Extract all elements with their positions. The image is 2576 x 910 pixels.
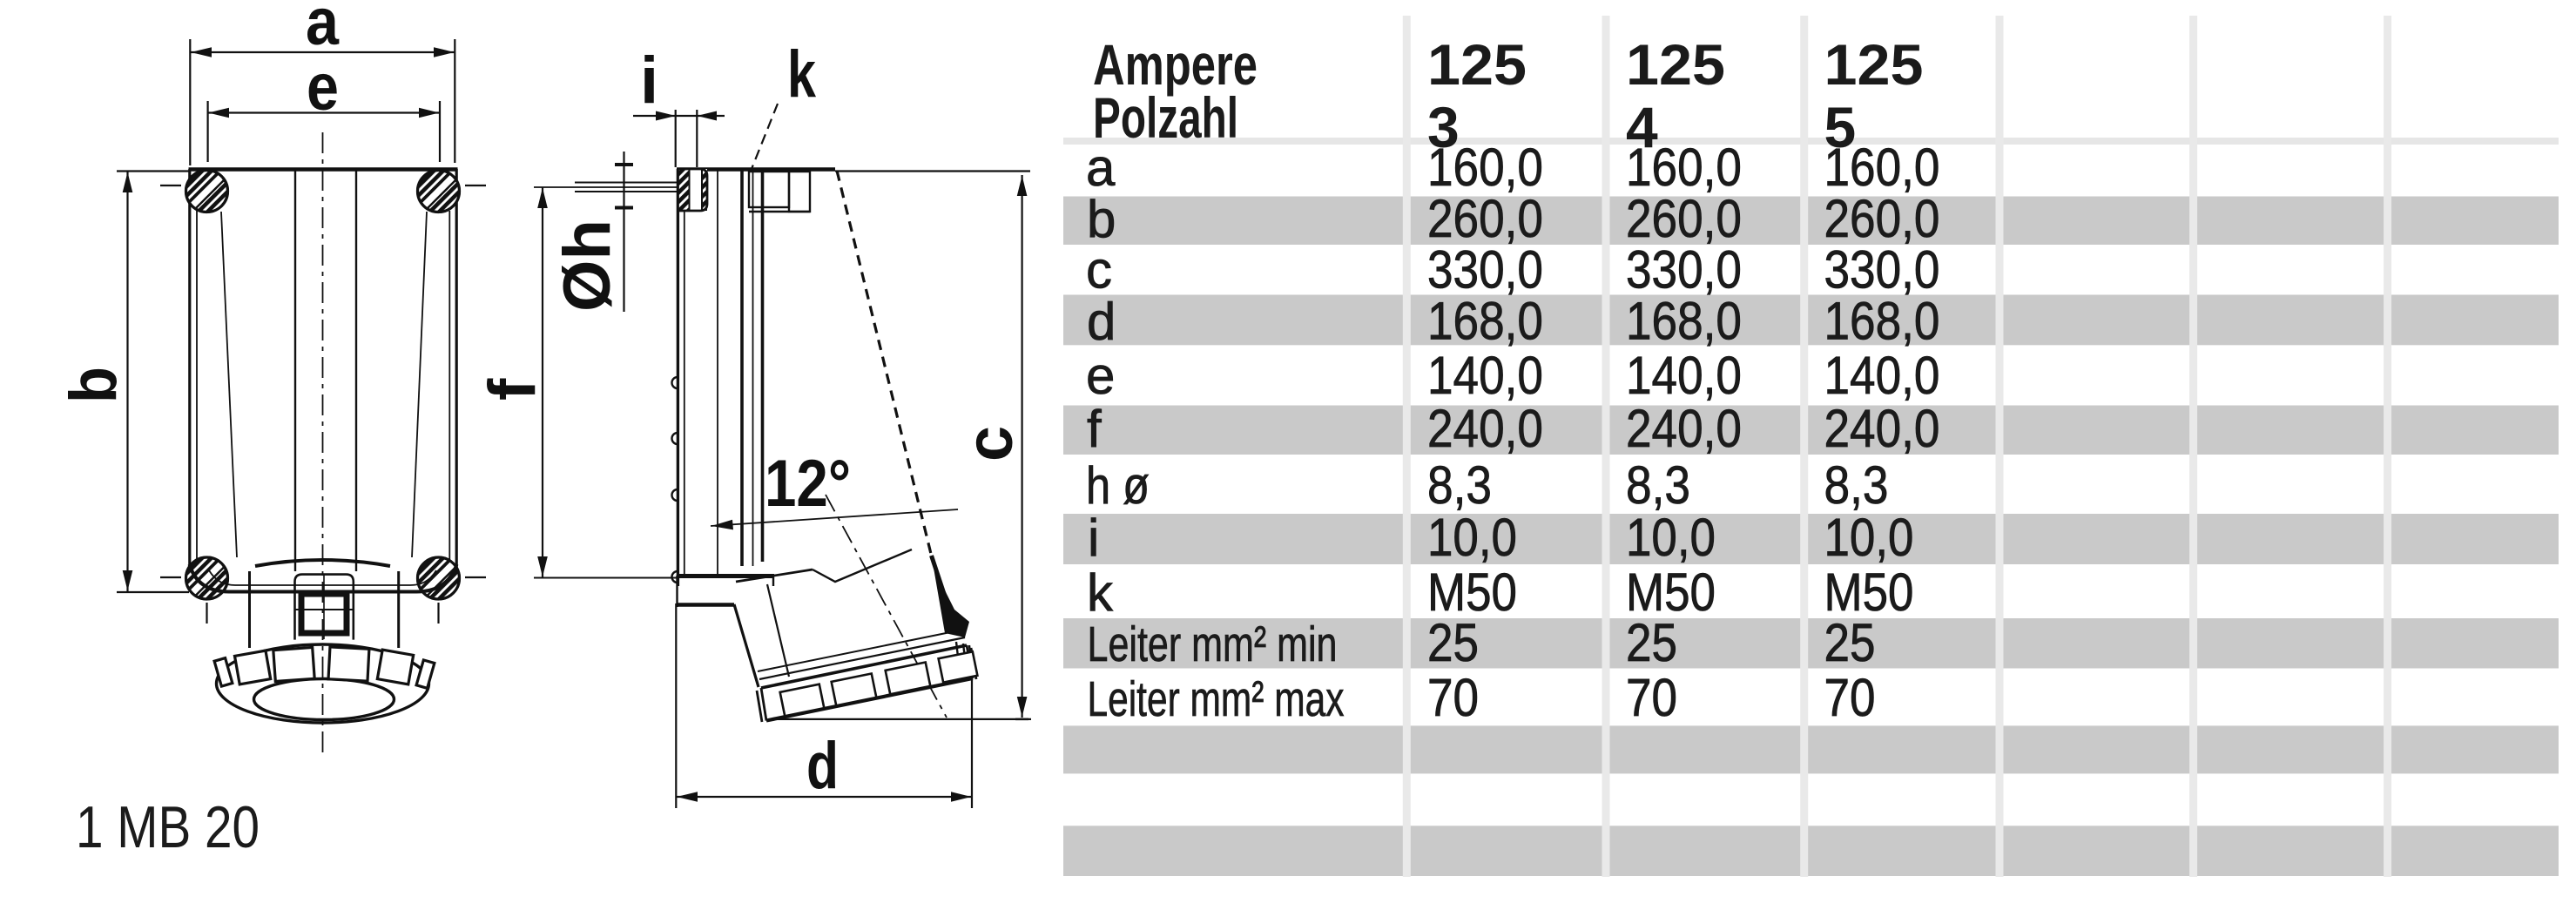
svg-text:c: c xyxy=(1086,241,1112,300)
svg-text:b: b xyxy=(1087,190,1116,248)
svg-text:240,0: 240,0 xyxy=(1824,399,1940,458)
svg-text:240,0: 240,0 xyxy=(1427,399,1543,458)
svg-text:1 MB 20: 1 MB 20 xyxy=(76,794,260,860)
svg-text:10,0: 10,0 xyxy=(1427,508,1517,567)
svg-text:k: k xyxy=(787,37,817,111)
svg-text:Øh: Øh xyxy=(550,219,624,312)
svg-text:330,0: 330,0 xyxy=(1427,240,1543,300)
svg-text:d: d xyxy=(1087,293,1116,351)
svg-text:c: c xyxy=(953,426,1027,462)
svg-text:125: 125 xyxy=(1626,32,1725,97)
svg-text:168,0: 168,0 xyxy=(1824,292,1940,351)
svg-text:d: d xyxy=(806,729,839,803)
svg-text:10,0: 10,0 xyxy=(1626,508,1716,567)
svg-text:k: k xyxy=(1087,563,1114,622)
svg-text:e: e xyxy=(307,51,339,125)
svg-text:h ø: h ø xyxy=(1086,456,1150,515)
svg-text:25: 25 xyxy=(1626,613,1677,672)
svg-text:330,0: 330,0 xyxy=(1626,240,1742,300)
svg-text:70: 70 xyxy=(1824,668,1876,727)
svg-text:8,3: 8,3 xyxy=(1626,455,1690,515)
svg-text:8,3: 8,3 xyxy=(1427,455,1492,515)
svg-text:12°: 12° xyxy=(765,447,851,521)
svg-text:f: f xyxy=(475,378,550,401)
svg-text:125: 125 xyxy=(1824,32,1924,97)
svg-text:8,3: 8,3 xyxy=(1824,455,1889,515)
svg-text:125: 125 xyxy=(1427,32,1527,97)
svg-text:140,0: 140,0 xyxy=(1824,346,1940,405)
svg-text:330,0: 330,0 xyxy=(1824,240,1940,300)
svg-text:f: f xyxy=(1087,400,1102,458)
svg-text:10,0: 10,0 xyxy=(1824,508,1914,567)
svg-text:168,0: 168,0 xyxy=(1626,292,1742,351)
svg-text:e: e xyxy=(1086,347,1115,405)
svg-text:a: a xyxy=(1086,138,1116,197)
svg-text:70: 70 xyxy=(1427,668,1479,727)
svg-text:70: 70 xyxy=(1626,668,1677,727)
svg-text:168,0: 168,0 xyxy=(1427,292,1543,351)
svg-text:160,0: 160,0 xyxy=(1824,138,1940,197)
svg-text:240,0: 240,0 xyxy=(1626,399,1742,458)
svg-text:160,0: 160,0 xyxy=(1626,138,1742,197)
svg-text:160,0: 160,0 xyxy=(1427,138,1543,197)
svg-text:i: i xyxy=(640,44,658,118)
svg-text:140,0: 140,0 xyxy=(1626,346,1742,405)
svg-text:25: 25 xyxy=(1824,613,1876,672)
svg-text:25: 25 xyxy=(1427,613,1479,672)
svg-text:b: b xyxy=(57,367,131,403)
svg-text:i: i xyxy=(1088,509,1099,567)
svg-text:140,0: 140,0 xyxy=(1427,346,1543,405)
svg-text:Leiter mm² min: Leiter mm² min xyxy=(1088,617,1338,672)
svg-text:Leiter mm² max: Leiter mm² max xyxy=(1088,671,1345,727)
